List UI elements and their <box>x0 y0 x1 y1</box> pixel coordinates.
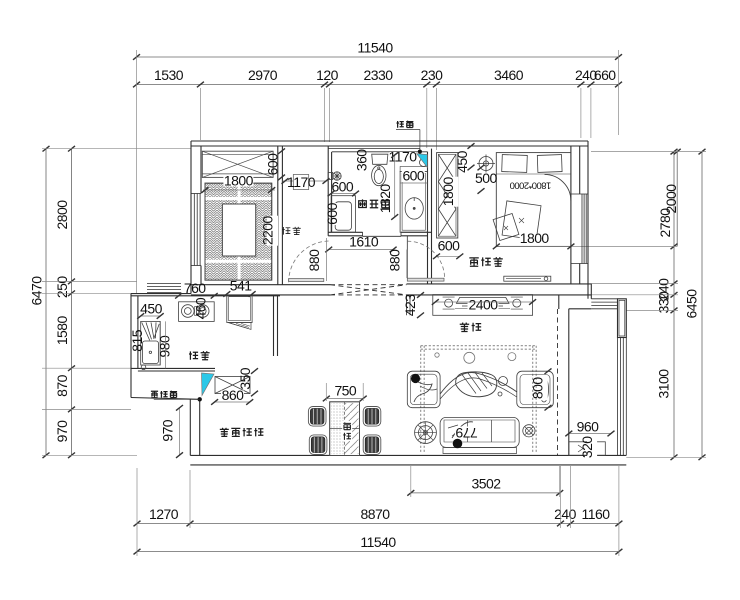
svg-text:600: 600 <box>402 168 424 184</box>
svg-text:1800: 1800 <box>520 230 550 246</box>
svg-text:541: 541 <box>230 278 252 294</box>
svg-text:360: 360 <box>354 149 370 171</box>
svg-text:230: 230 <box>421 67 443 83</box>
svg-text:120: 120 <box>316 67 338 83</box>
svg-text:1800: 1800 <box>440 176 456 206</box>
svg-text:1160: 1160 <box>582 506 611 522</box>
svg-text:870: 870 <box>54 374 70 396</box>
svg-text:600: 600 <box>324 202 340 224</box>
svg-text:250: 250 <box>54 276 70 298</box>
svg-text:1800: 1800 <box>224 173 254 189</box>
svg-text:2330: 2330 <box>364 67 394 83</box>
svg-text:2970: 2970 <box>248 67 278 83</box>
svg-text:750: 750 <box>334 383 356 399</box>
svg-text:970: 970 <box>54 420 70 442</box>
svg-text:2400: 2400 <box>469 297 499 313</box>
svg-text:1800*2000: 1800*2000 <box>510 179 551 190</box>
svg-text:6450: 6450 <box>684 289 700 319</box>
svg-text:2000: 2000 <box>663 184 679 214</box>
svg-text:760: 760 <box>184 280 206 296</box>
svg-text:880: 880 <box>387 249 403 271</box>
svg-text:1170: 1170 <box>287 174 316 190</box>
svg-text:660: 660 <box>594 67 616 83</box>
svg-text:2200: 2200 <box>260 215 276 245</box>
svg-text:350: 350 <box>237 367 253 389</box>
svg-text:11540: 11540 <box>357 40 393 56</box>
svg-text:8870: 8870 <box>361 506 391 522</box>
svg-text:779: 779 <box>455 425 477 441</box>
svg-text:3100: 3100 <box>656 369 672 399</box>
svg-text:600: 600 <box>438 238 460 254</box>
svg-text:980: 980 <box>156 335 172 357</box>
svg-text:423: 423 <box>402 294 418 316</box>
svg-text:1580: 1580 <box>54 315 70 345</box>
svg-text:600: 600 <box>331 179 353 195</box>
svg-text:320: 320 <box>579 436 595 458</box>
svg-text:800: 800 <box>529 377 545 399</box>
svg-text:1320: 1320 <box>377 184 393 214</box>
svg-text:460: 460 <box>193 297 209 319</box>
svg-text:1530: 1530 <box>154 67 184 83</box>
svg-text:960: 960 <box>577 419 599 435</box>
svg-text:1270: 1270 <box>149 506 179 522</box>
svg-text:1610: 1610 <box>349 234 379 250</box>
svg-text:6470: 6470 <box>29 276 45 306</box>
svg-text:2800: 2800 <box>54 200 70 230</box>
svg-text:600: 600 <box>265 153 281 175</box>
svg-text:240: 240 <box>554 506 576 522</box>
svg-text:500: 500 <box>475 170 497 186</box>
svg-text:815: 815 <box>129 329 145 351</box>
svg-text:880: 880 <box>306 249 322 271</box>
svg-text:330: 330 <box>656 291 672 313</box>
svg-text:3502: 3502 <box>472 476 502 492</box>
svg-text:11540: 11540 <box>360 534 396 550</box>
svg-text:970: 970 <box>160 419 176 441</box>
svg-text:3460: 3460 <box>494 67 524 83</box>
